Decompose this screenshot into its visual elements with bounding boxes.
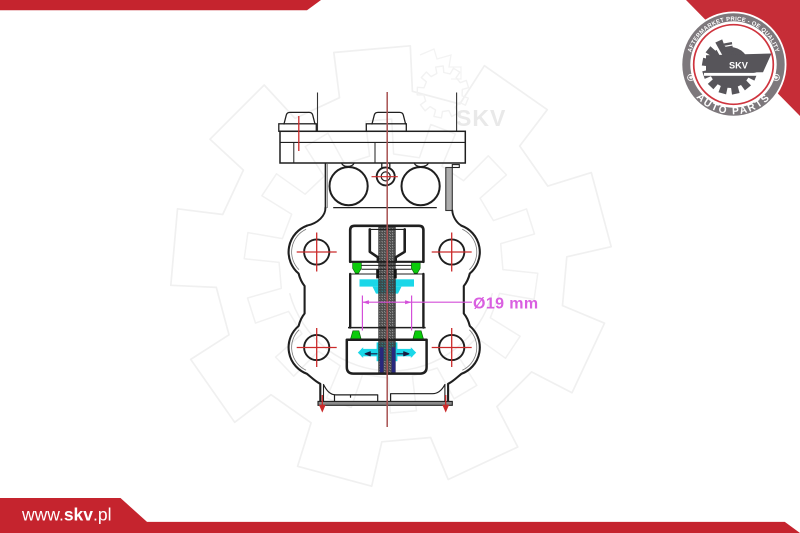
svg-text:Ø19 mm: Ø19 mm [473,296,539,313]
svg-text:SKV: SKV [456,105,506,131]
svg-text:SKV: SKV [729,60,749,70]
svg-text:www.skv.pl: www.skv.pl [21,505,112,525]
